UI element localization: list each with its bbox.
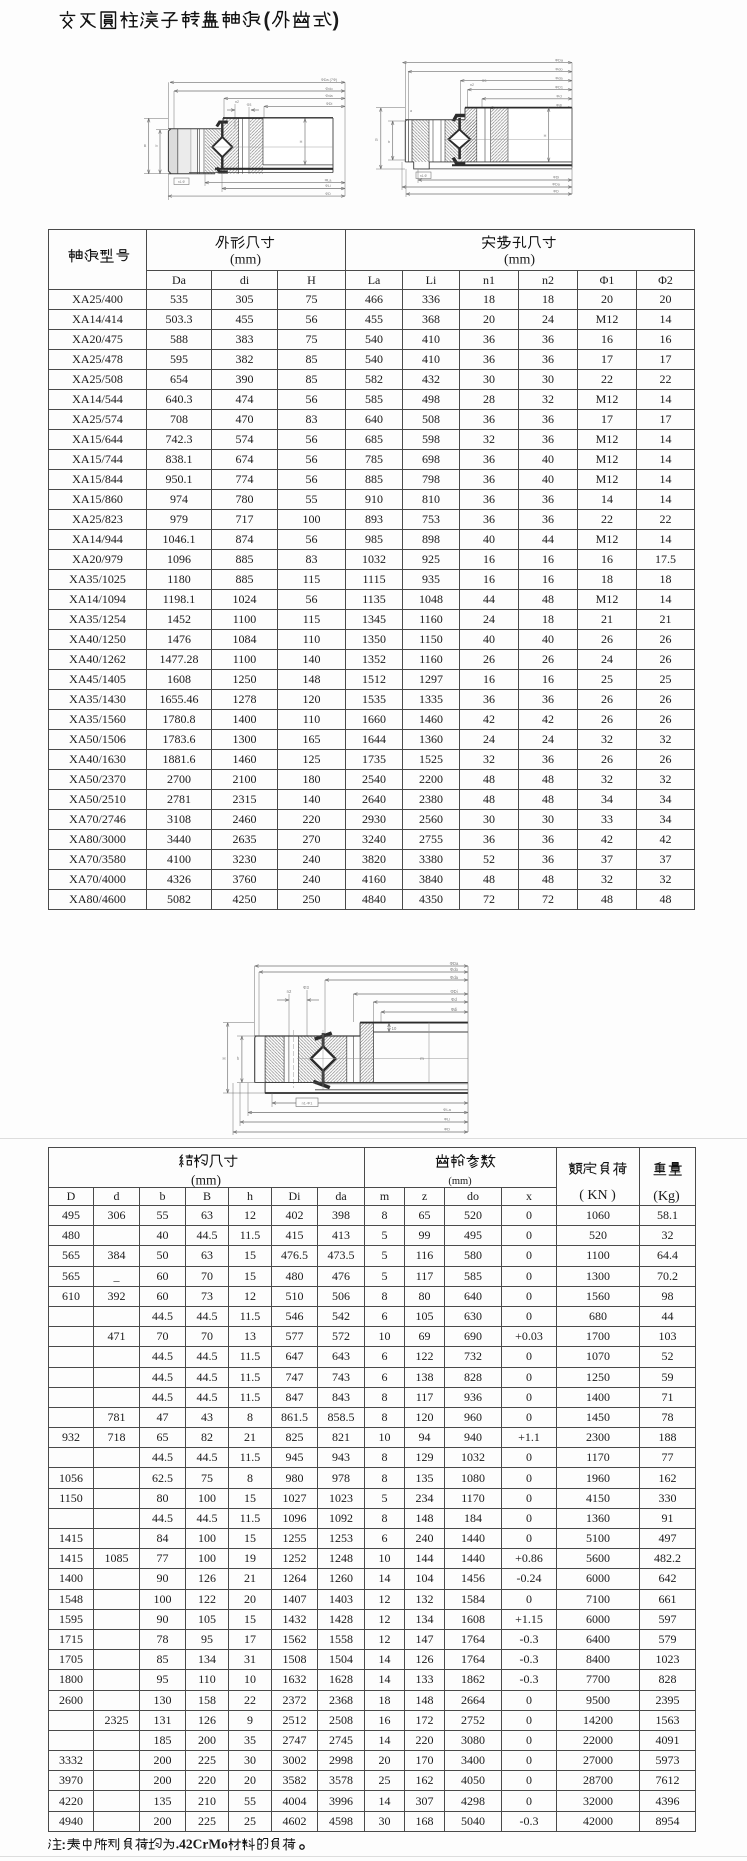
svg-text:Φd: Φd: [451, 997, 457, 1002]
svg-text:Φdo: Φdo: [325, 87, 332, 91]
svg-text:n2: n2: [287, 989, 292, 994]
svg-text:Φ3: Φ3: [247, 103, 252, 107]
svg-text:ΦD1: ΦD1: [555, 86, 563, 90]
svg-text:ΦD: ΦD: [444, 1127, 450, 1132]
svg-text:n1-Φ1: n1-Φ1: [302, 1102, 313, 1106]
svg-text:): ): [333, 10, 340, 32]
svg-text:H: H: [544, 134, 547, 138]
svg-text:Φdo: Φdo: [555, 68, 562, 72]
svg-text:Φda: Φda: [325, 94, 333, 98]
svg-text:ΦLi: ΦLi: [325, 184, 331, 188]
svg-text:ΦLi: ΦLi: [444, 1117, 450, 1122]
svg-text:Φdi: Φdi: [451, 1007, 458, 1012]
svg-text:Φda: Φda: [450, 975, 459, 980]
svg-text:H: H: [300, 140, 303, 144]
svg-text:B: B: [375, 138, 378, 142]
svg-text:Φdo: Φdo: [450, 967, 459, 972]
svg-text:Φd: Φd: [556, 95, 561, 99]
svg-text:n2: n2: [470, 83, 474, 87]
svg-text:n2: n2: [235, 100, 239, 104]
svg-text:ΦDa: ΦDa: [450, 961, 459, 966]
svg-text:b: b: [388, 140, 390, 144]
svg-text:n1-Φ: n1-Φ: [178, 180, 186, 184]
svg-text:ΦLa: ΦLa: [443, 1107, 451, 1112]
svg-text:ΦDa: ΦDa: [555, 58, 564, 62]
svg-text::: :: [62, 1837, 66, 1852]
svg-text:ΦDi: ΦDi: [553, 176, 559, 180]
svg-text:10: 10: [392, 1026, 397, 1031]
svg-text:b: b: [155, 144, 157, 148]
svg-text:h: h: [237, 1056, 240, 1061]
svg-text:ΦDa (7Φ): ΦDa (7Φ): [321, 78, 338, 82]
svg-text:Φ3: Φ3: [303, 985, 309, 990]
svg-text:.42CrMo: .42CrMo: [176, 1837, 228, 1852]
svg-text:Φda: Φda: [555, 77, 563, 81]
svg-text:ΦLa: ΦLa: [325, 178, 332, 182]
svg-text:Φ3: Φ3: [482, 79, 487, 83]
svg-text:ΦD: ΦD: [325, 192, 331, 196]
svg-text:n1-Φ: n1-Φ: [420, 174, 428, 178]
svg-text:a: a: [410, 109, 412, 113]
svg-text:m: m: [420, 1056, 424, 1061]
svg-text:ΦDi: ΦDi: [326, 102, 333, 106]
svg-text:H: H: [222, 1056, 225, 1061]
svg-text:B: B: [144, 144, 147, 148]
svg-text:ΦD: ΦD: [553, 190, 559, 194]
svg-text:ΦDa: ΦDa: [552, 183, 559, 187]
svg-text:(: (: [264, 10, 271, 32]
svg-text:ΦDi: ΦDi: [450, 989, 457, 994]
